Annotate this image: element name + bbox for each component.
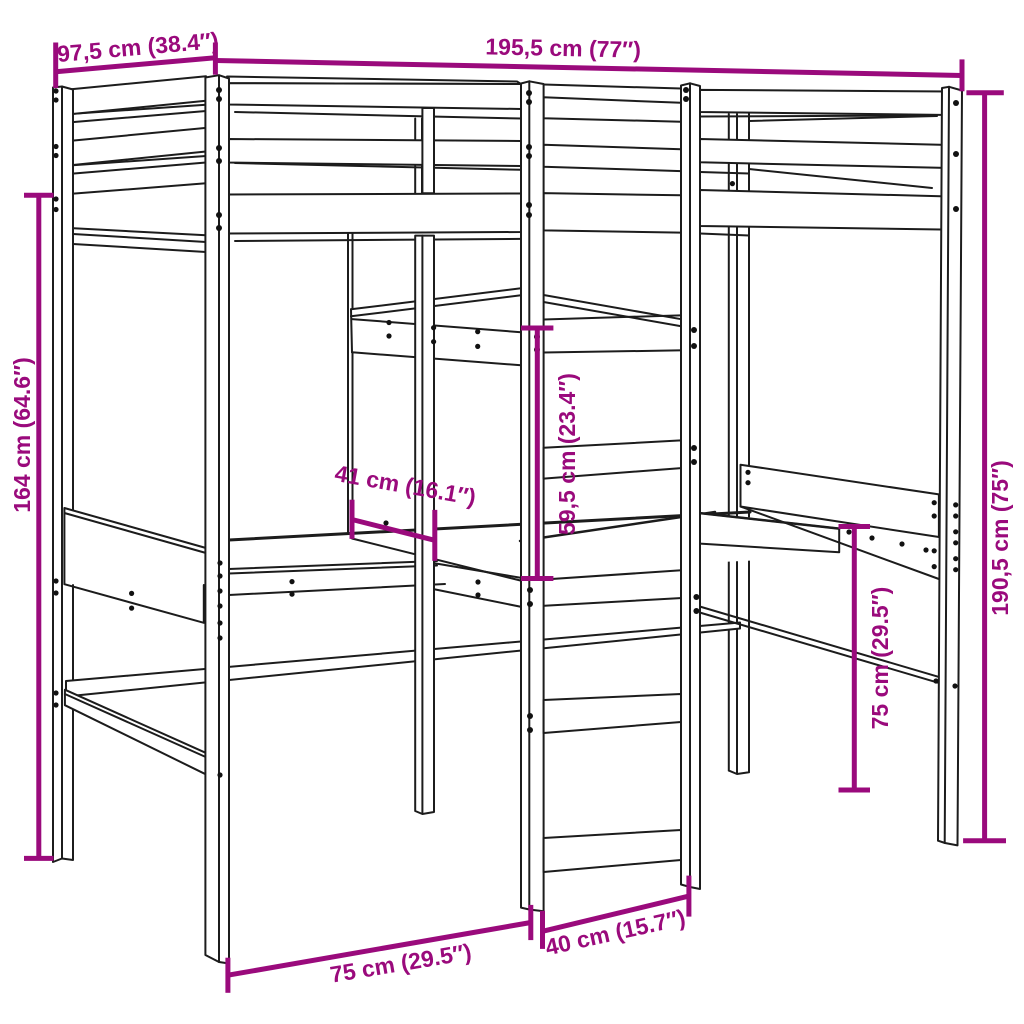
svg-text:75 cm (29.5″): 75 cm (29.5″): [867, 587, 893, 730]
svg-text:195,5 cm (77″): 195,5 cm (77″): [485, 33, 641, 62]
svg-text:164 cm (64.6″): 164 cm (64.6″): [9, 357, 35, 513]
svg-text:190,5 cm (75″): 190,5 cm (75″): [987, 460, 1013, 616]
svg-text:59,5 cm (23.4″): 59,5 cm (23.4″): [554, 373, 580, 535]
